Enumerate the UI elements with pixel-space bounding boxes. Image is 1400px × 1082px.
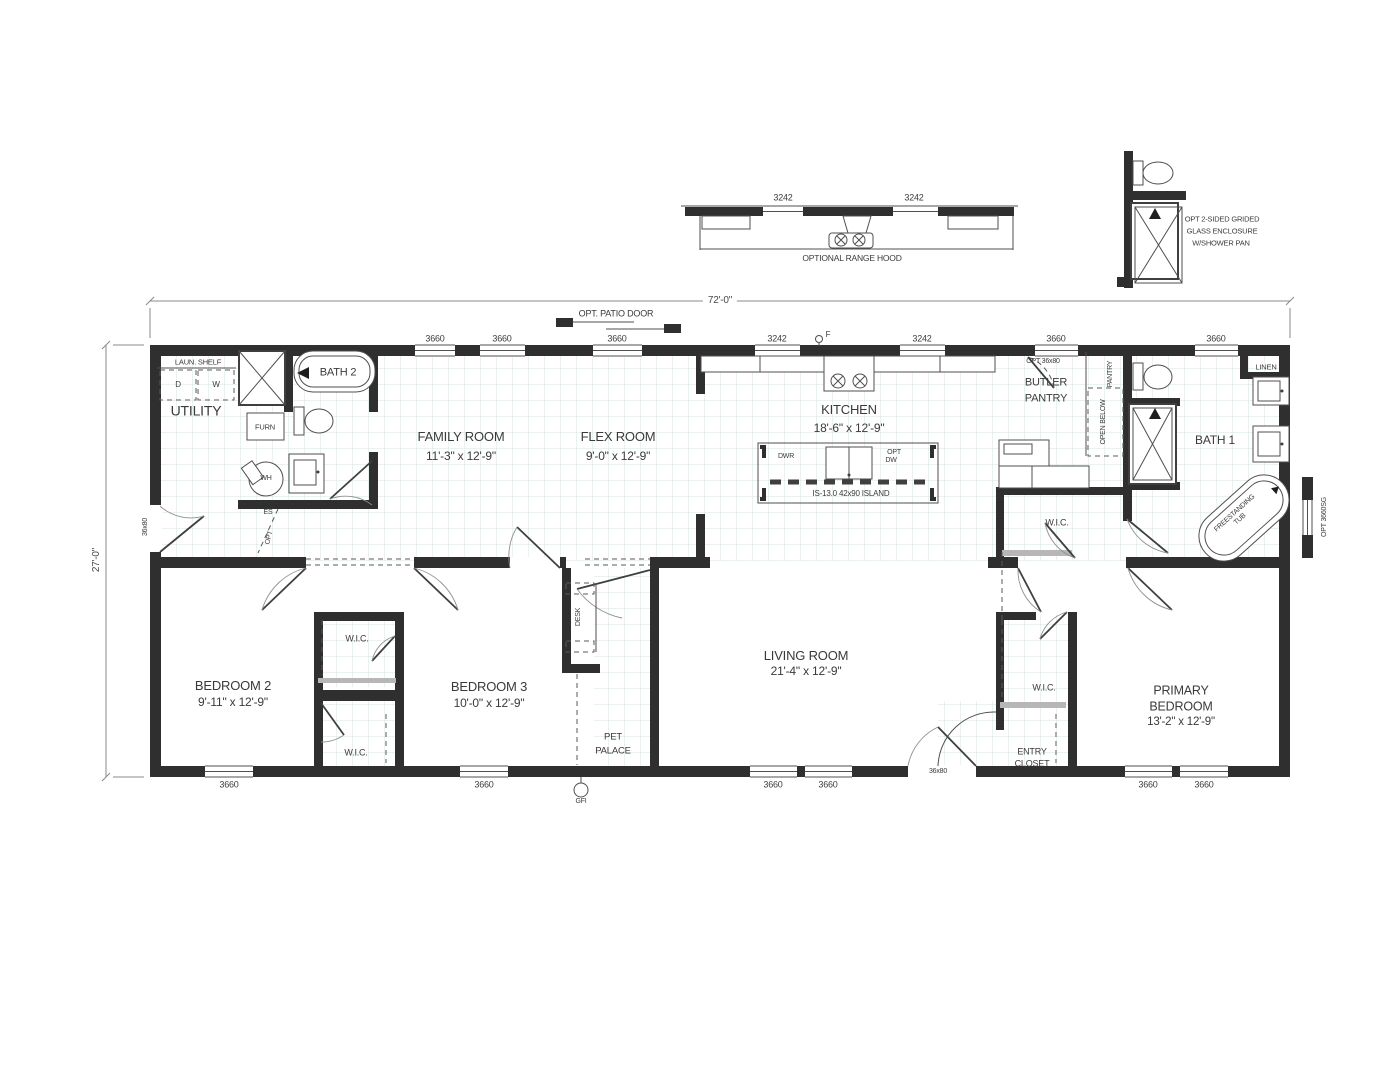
room-label-primary-2: BEDROOM [1149,700,1212,715]
desk-label: DESK [575,608,583,626]
patio-door-label: OPT. PATIO DOOR [579,309,654,320]
detail-window-label: 3242 [904,193,923,204]
window-label: 3660 [607,334,626,345]
room-label-butler-1: BUTLER [1025,376,1067,389]
room-label-pet-1: PET [604,731,622,742]
room-label-bath1: BATH 1 [1195,433,1235,447]
shower-detail-note-2: GLASS ENCLOSURE [1187,227,1258,236]
shower-detail-note-1: OPT 2-SIDED GRIDED [1185,215,1260,224]
room-label-wic2: W.I.C. [344,748,367,759]
island-label: IS-13.0 42x90 ISLAND [813,489,890,499]
room-label-bedroom3: BEDROOM 3 [451,679,527,695]
kitchen-range [824,356,874,391]
electrical-panel-label: ES [264,509,273,517]
left-door-size-label: 36x80 [142,518,150,536]
hall-door [1018,568,1041,612]
patio-door-symbol [556,318,681,333]
water-heater-label: WH [260,475,271,483]
open-below-label: OPEN BELOW [1100,399,1108,444]
washer-label: W [212,380,219,390]
utility-shower [239,351,285,405]
range-hood-title: OPTIONAL RANGE HOOD [802,253,901,263]
dryer-label: D [175,380,181,390]
room-label-bedroom2: BEDROOM 2 [195,678,271,694]
room-label-wic3: W.I.C. [1032,683,1055,694]
opt-right-window-label: OPT 3660SG [1321,497,1329,537]
room-label-wic1: W.I.C. [345,634,368,645]
overall-width-dim: 72'-0" [703,295,737,307]
window-label: 3660 [818,780,837,791]
room-dims-living: 21'-4" x 12'-9" [771,664,842,678]
room-label-living: LIVING ROOM [764,648,848,664]
room-dims-family: 11'-3" x 12'-9" [426,449,496,463]
shower-detail [1117,151,1186,288]
window-label: 3660 [763,780,782,791]
room-label-linen: LINEN [1255,363,1276,372]
room-label-flex: FLEX ROOM [581,429,656,445]
window-label: 3660 [1206,334,1225,345]
floor-plan-drawing [0,0,1400,1082]
room-label-entry-1: ENTRY [1017,747,1046,758]
gfi-label: GFI [575,798,586,806]
primary-door [1128,568,1172,610]
range-hood-detail [681,206,1018,250]
room-label-butler-2: PANTRY [1025,392,1067,405]
room-label-kitchen: KITCHEN [821,402,877,418]
floor-plan: 72'-0" 27'-0" OPT. PATIO DOOR 3660 3660 … [0,0,1400,1082]
room-label-bath2: BATH 2 [320,366,357,379]
opt-pantry-door-label: OPT 36x80 [1026,358,1059,366]
vestibule-doors [262,568,458,610]
window-label: 3660 [219,780,238,791]
bath1-toilet [1133,363,1172,390]
window-label: 3660 [425,334,444,345]
hose-bib-label: F [826,330,831,340]
laundry-shelf-label: LAUN. SHELF [175,358,221,367]
room-dims-bedroom2: 9'-11" x 12'-9" [198,695,268,709]
hose-bib-icon [816,336,823,347]
window-label: 3660 [1138,780,1157,791]
drawer-label: DWR [778,453,794,461]
room-dims-primary: 13'-2" x 12'-9" [1147,716,1215,730]
shower-detail-note-3: W/SHOWER PAN [1192,239,1249,248]
bath1-shower [1129,404,1176,484]
gfi-outlet-icon [574,777,588,797]
room-label-wic-bath: W.I.C. [1045,518,1068,529]
room-dims-kitchen: 18'-6" x 12'-9" [814,421,885,435]
room-label-family: FAMILY ROOM [418,429,505,445]
room-dims-bedroom3: 10'-0" x 12'-9" [454,696,525,710]
furnace-label: FURN [255,423,275,432]
room-label-pet-2: PALACE [595,745,631,756]
bath2-sink [289,454,324,493]
window-label: 3660 [1194,780,1213,791]
pantry-label: PANTRY [1107,361,1115,388]
bath2-toilet [294,407,333,435]
room-label-entry-2: CLOSET [1015,759,1050,770]
room-label-utility: UTILITY [171,403,222,420]
window-label: 3660 [474,780,493,791]
entry-door-size-label: 36x80 [927,768,949,776]
window-label: 3660 [1046,334,1065,345]
window-label: 3660 [492,334,511,345]
window-label: 3242 [912,334,931,345]
room-dims-flex: 9'-0" x 12'-9" [586,449,650,463]
room-label-primary-1: PRIMARY [1153,684,1208,699]
overall-height-dim: 27'-0" [91,543,103,577]
window-label: 3242 [767,334,786,345]
opt-dw-label-2: DW [885,457,896,465]
detail-window-label: 3242 [773,193,792,204]
optional-right-window [1302,477,1313,558]
